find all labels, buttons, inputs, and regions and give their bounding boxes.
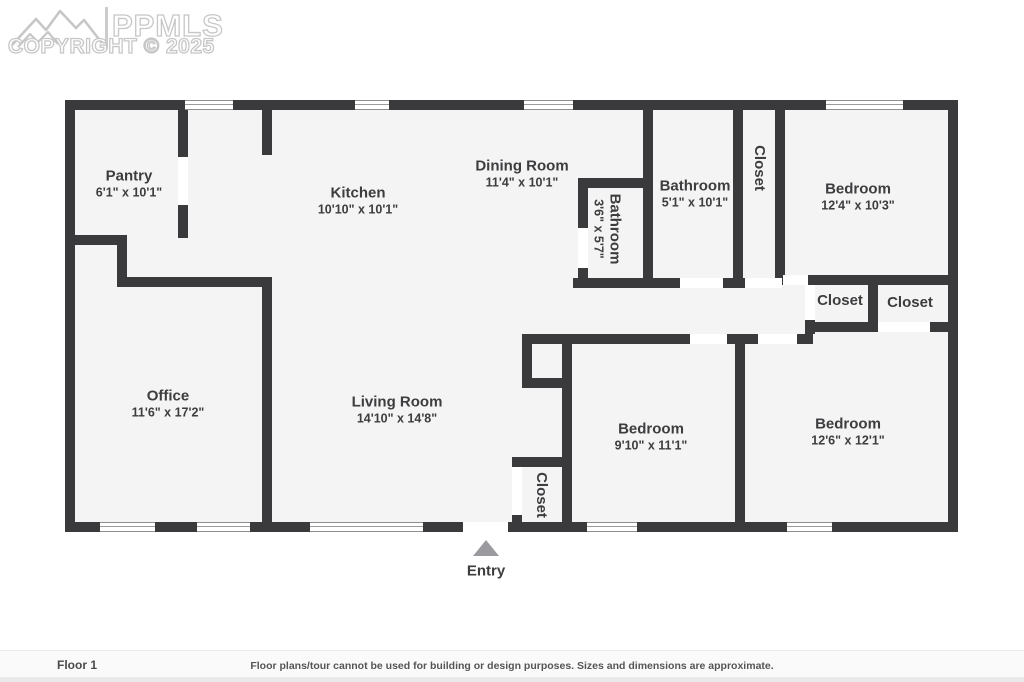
- wall-segment: [727, 334, 758, 344]
- room-label: Bedroom12'6" x 12'1": [811, 416, 884, 449]
- window: [826, 100, 903, 110]
- wall-segment: [578, 188, 588, 228]
- wall-segment: [522, 378, 572, 388]
- window: [100, 522, 155, 532]
- room-label: Dining Room11'4" x 10'1": [475, 158, 568, 191]
- room-label: Office11'6" x 17'2": [132, 388, 205, 421]
- disclaimer-text: Floor plans/tour cannot be used for buil…: [0, 660, 1024, 672]
- room-label: Closet: [887, 294, 933, 312]
- room-label: Closet: [817, 292, 863, 310]
- entry-label: Entry: [467, 563, 505, 580]
- room-label: Closet: [750, 145, 768, 191]
- room-name: Office: [132, 388, 205, 406]
- footer-strip: [0, 677, 1024, 682]
- wall-segment: [775, 110, 785, 275]
- door-opening: [512, 467, 522, 515]
- room-label: Bedroom9'10" x 11'1": [615, 421, 688, 454]
- wall-segment: [117, 277, 272, 287]
- room-dimensions: 11'4" x 10'1": [475, 176, 568, 191]
- wall-segment: [522, 334, 690, 344]
- door-opening: [758, 334, 797, 344]
- wall-segment: [262, 277, 272, 522]
- door-opening: [745, 278, 782, 288]
- room-name: Bedroom: [821, 181, 894, 199]
- room-dimensions: 11'6" x 17'2": [132, 406, 205, 421]
- wall-segment: [735, 344, 745, 522]
- room-label: Pantry6'1" x 10'1": [96, 168, 162, 201]
- ppmls-logo: PPMLS COPYRIGHT © 2025: [8, 2, 268, 64]
- entry-arrow-icon: [473, 540, 499, 556]
- door-opening: [878, 322, 930, 332]
- room-dimensions: 14'10" x 14'8": [352, 412, 443, 427]
- window: [587, 522, 637, 532]
- door-opening: [178, 157, 188, 205]
- room-name: Closet: [750, 145, 768, 191]
- door-opening: [463, 522, 508, 532]
- wall-segment: [65, 100, 75, 532]
- wall-segment: [512, 515, 522, 522]
- room-name: Dining Room: [475, 158, 568, 176]
- window: [310, 522, 423, 532]
- room-dimensions: 10'10" x 10'1": [318, 203, 398, 218]
- room-label: Kitchen10'10" x 10'1": [318, 185, 398, 218]
- wall-segment: [805, 322, 872, 332]
- wall-segment: [578, 178, 653, 188]
- room-name: Closet: [817, 292, 863, 310]
- window: [787, 522, 832, 532]
- room-dimensions: 12'6" x 12'1": [811, 434, 884, 449]
- wall-segment: [948, 100, 958, 532]
- door-opening: [805, 285, 815, 320]
- wall-segment: [562, 334, 572, 522]
- room-dimensions: 5'1" x 10'1": [660, 196, 731, 211]
- window: [197, 522, 250, 532]
- room-dimensions: 12'4" x 10'3": [821, 199, 894, 214]
- room-name: Bedroom: [615, 421, 688, 439]
- wall-segment: [723, 278, 745, 288]
- room-dimensions: 3'6" x 5'7": [591, 194, 606, 265]
- footer-bar: Floor 1 Floor plans/tour cannot be used …: [0, 650, 1024, 682]
- room-label: Bathroom5'1" x 10'1": [660, 178, 731, 211]
- room-name: Living Room: [352, 394, 443, 412]
- wall-segment: [573, 278, 680, 288]
- room-dimensions: 6'1" x 10'1": [96, 186, 162, 201]
- door-opening: [783, 275, 808, 285]
- room-name: Bedroom: [811, 416, 884, 434]
- door-opening: [680, 278, 723, 288]
- room-name: Closet: [532, 472, 550, 518]
- room-name: Bathroom: [606, 194, 624, 265]
- wall-segment: [178, 205, 188, 238]
- wall-segment: [178, 110, 188, 157]
- floor-plan-page: PPMLS COPYRIGHT © 2025 Pantry6'1" x 10'1…: [0, 0, 1024, 682]
- window: [355, 100, 389, 110]
- wall-segment: [643, 110, 653, 288]
- room-label: Closet: [532, 472, 550, 518]
- wall-segment: [262, 110, 272, 155]
- wall-segment: [930, 322, 948, 332]
- room-name: Closet: [887, 294, 933, 312]
- wall-segment: [733, 110, 743, 288]
- wall-segment: [512, 457, 572, 467]
- wall-segment: [797, 334, 813, 344]
- room-label: Living Room14'10" x 14'8": [352, 394, 443, 427]
- room-name: Pantry: [96, 168, 162, 186]
- room-name: Kitchen: [318, 185, 398, 203]
- door-opening: [578, 228, 588, 268]
- wall-segment: [808, 275, 948, 285]
- door-opening: [690, 334, 727, 344]
- room-label: Bedroom12'4" x 10'3": [821, 181, 894, 214]
- room-label: Bathroom3'6" x 5'7": [591, 194, 624, 265]
- floor-plan-drawing: Pantry6'1" x 10'1"Kitchen10'10" x 10'1"D…: [65, 100, 958, 532]
- room-dimensions: 9'10" x 11'1": [615, 439, 688, 454]
- room-name: Bathroom: [660, 178, 731, 196]
- window: [524, 100, 573, 110]
- logo-copyright-text: COPYRIGHT © 2025: [8, 35, 215, 59]
- window: [185, 100, 233, 110]
